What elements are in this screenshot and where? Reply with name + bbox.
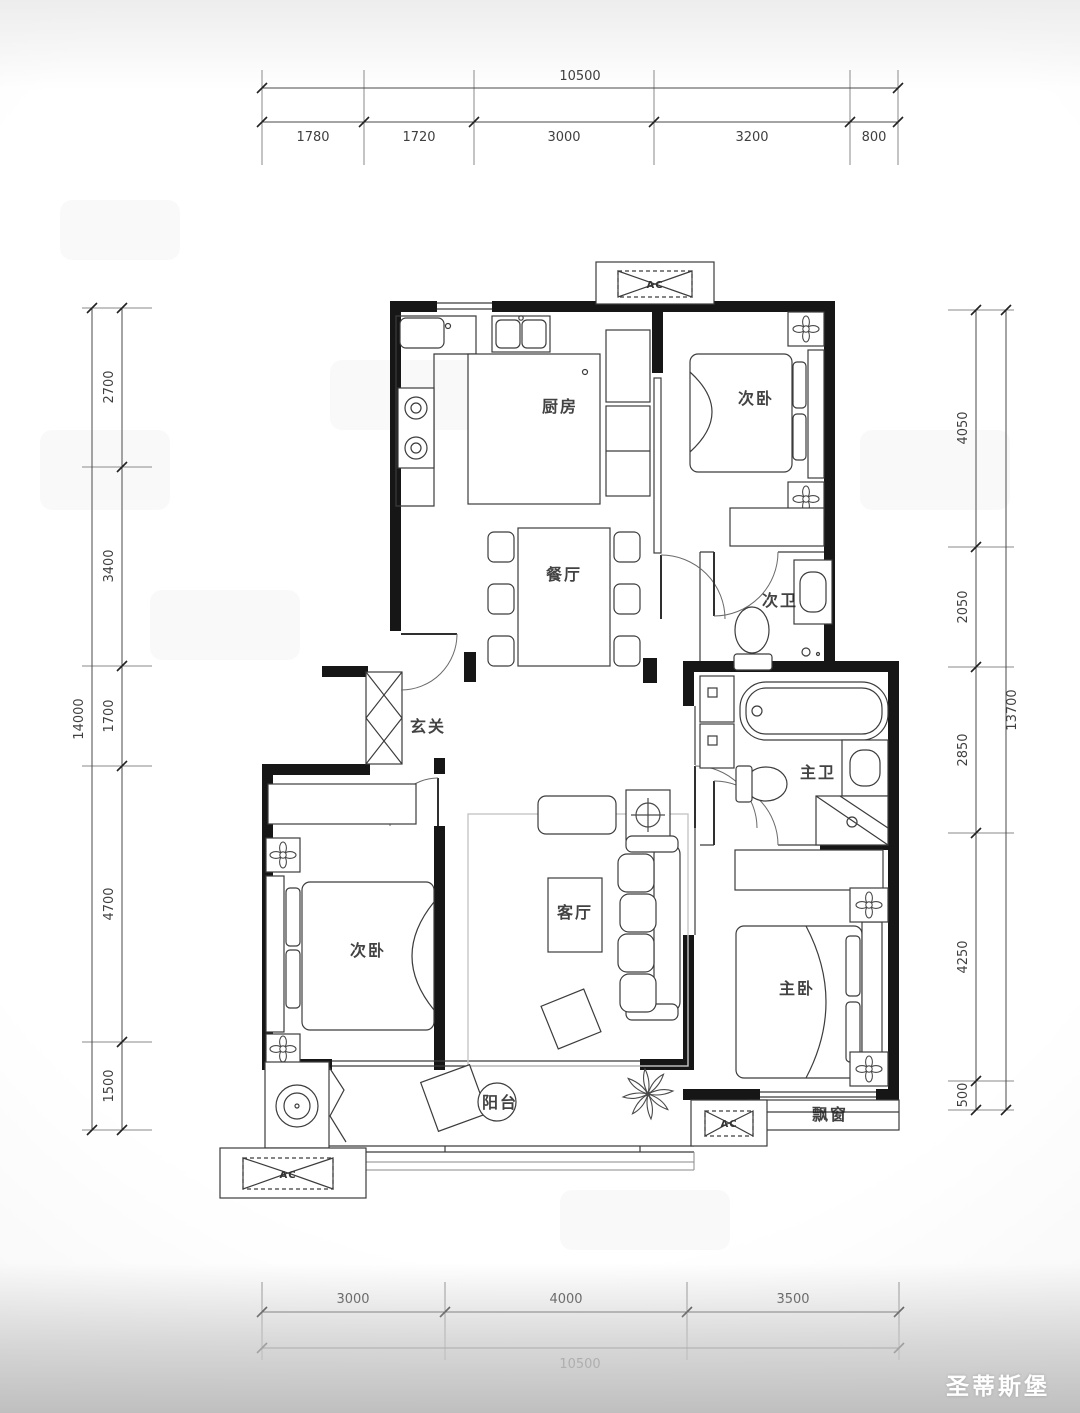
dim-left-seg2: 3400	[102, 549, 117, 582]
kitchen-cabinet	[606, 330, 650, 402]
ac-unit-bottom-left: AC	[220, 1148, 366, 1198]
dim-left-overall: 14000	[72, 698, 87, 739]
floorplan-screenshot: 10500 1780 1720 3000 3200 800 3000 4000 …	[0, 0, 1080, 1413]
dim-bottom-seg1: 3000	[336, 1292, 369, 1307]
room-label-bay-window: 飘窗	[812, 1105, 848, 1124]
room-label-balcony: 阳台	[482, 1093, 518, 1112]
room-label-bedroom-master: 主卧	[779, 979, 815, 998]
room-label-bath2: 次卫	[762, 591, 798, 610]
room-label-dining: 餐厅	[545, 565, 582, 584]
balcony-chair	[421, 1065, 488, 1132]
dim-top-seg2: 1720	[402, 130, 435, 145]
bedroom-master-furniture	[735, 850, 888, 1086]
dim-left-seg5: 1500	[102, 1069, 117, 1102]
ac-unit-bottom-middle: AC	[691, 1100, 767, 1146]
bath-master-fixtures	[700, 676, 888, 845]
dim-top-seg5: 800	[862, 130, 887, 145]
dim-right-overall: 13700	[1005, 689, 1020, 730]
sofa	[618, 836, 680, 1020]
ac-label: AC	[720, 1119, 737, 1130]
dim-bottom-seg2: 4000	[549, 1292, 582, 1307]
dim-top-seg1: 1780	[296, 130, 329, 145]
wardrobe-hatch	[730, 508, 824, 546]
wardrobe-hatch	[735, 850, 883, 890]
room-label-bedroom2-left: 次卧	[350, 941, 386, 960]
dim-bottom-seg3: 3500	[776, 1292, 809, 1307]
bath2-fixtures	[734, 560, 832, 670]
bedroom-top-furniture	[690, 312, 824, 546]
room-label-kitchen: 厨房	[542, 397, 578, 416]
folding-door	[327, 1064, 346, 1142]
kitchen-worktable	[468, 354, 600, 504]
kitchen-fixtures	[396, 316, 650, 506]
watermark: 圣蒂斯堡	[946, 1367, 1050, 1401]
room-label-bedroom2-top: 次卧	[738, 389, 774, 408]
washing-machine	[276, 1085, 318, 1127]
dim-top-seg3: 3000	[547, 130, 580, 145]
ac-unit-top: AC	[596, 262, 714, 304]
dim-left-seg3: 1700	[102, 699, 117, 732]
shaft-hatch	[366, 672, 402, 764]
room-label-living: 客厅	[557, 903, 593, 922]
dim-top-seg4: 3200	[735, 130, 768, 145]
balcony-furniture	[265, 1062, 673, 1148]
shower	[816, 796, 888, 845]
living-furniture	[468, 790, 688, 1066]
room-label-entry: 玄关	[410, 717, 446, 736]
dim-right-seg5: 500	[956, 1083, 971, 1108]
ac-label: AC	[279, 1170, 296, 1181]
dim-left-seg1: 2700	[102, 370, 117, 403]
dim-right-seg2: 2050	[956, 590, 971, 623]
bedroom-left-furniture	[266, 784, 434, 1064]
dim-bottom-overall: 10500	[559, 1357, 600, 1372]
plant-symbol	[623, 1069, 673, 1119]
dim-right-seg1: 4050	[956, 411, 971, 444]
dim-right-seg4: 4250	[956, 940, 971, 973]
stove	[398, 388, 434, 468]
sliding-door	[654, 378, 661, 553]
dim-right-seg3: 2850	[956, 733, 971, 766]
dim-top-overall: 10500	[559, 69, 600, 84]
ac-label: AC	[646, 280, 663, 291]
room-label-bath-master: 主卫	[800, 763, 836, 782]
dining-set	[488, 528, 640, 666]
dim-left-seg4: 4700	[102, 887, 117, 920]
floorplan-svg: 10500 1780 1720 3000 3200 800 3000 4000 …	[0, 0, 1080, 1413]
ottoman	[541, 989, 601, 1049]
tv-console	[538, 796, 616, 834]
wardrobe-hatch	[268, 784, 416, 824]
bedroom-top-door	[661, 555, 725, 619]
entry-door	[401, 634, 457, 690]
